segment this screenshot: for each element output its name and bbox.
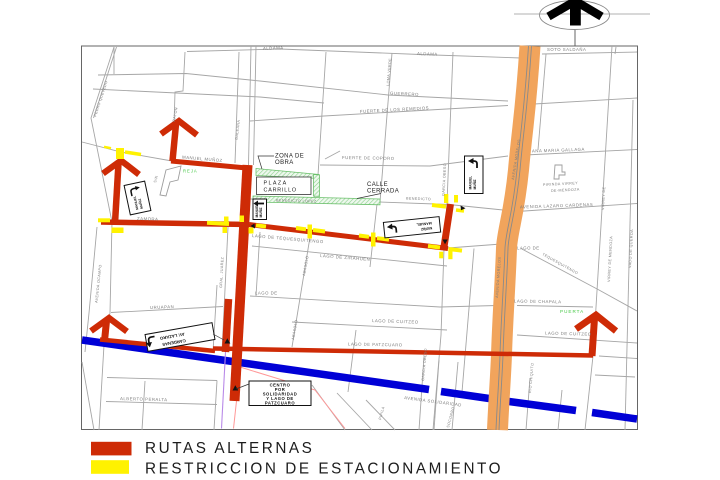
svg-text:ALDAMA: ALDAMA (417, 51, 438, 57)
svg-text:FUERTE DE COPORO: FUERTE DE COPORO (342, 155, 395, 161)
svg-text:MUÑIZ: MUÑIZ (258, 207, 263, 217)
svg-text:RUTAS ALTERNAS: RUTAS ALTERNAS (145, 440, 314, 457)
svg-text:ZAMORA: ZAMORA (137, 216, 159, 222)
svg-text:CARRILLO: CARRILLO (264, 188, 297, 194)
svg-text:URUAPAN: URUAPAN (150, 304, 174, 310)
svg-text:OBRA: OBRA (275, 160, 294, 166)
svg-text:REJA: REJA (183, 169, 198, 174)
svg-text:PLAZA: PLAZA (264, 181, 288, 187)
svg-text:CERRADA: CERRADA (367, 189, 399, 195)
svg-text:RESTRICCION DE ESTACIONAMIENTO: RESTRICCION DE ESTACIONAMIENTO (145, 460, 503, 477)
svg-text:LAGO DE: LAGO DE (255, 291, 278, 296)
svg-text:LAGO DE CHAPALA: LAGO DE CHAPALA (514, 299, 562, 305)
svg-text:LAGO DE PATZCUARO: LAGO DE PATZCUARO (348, 342, 403, 348)
svg-text:CALLE: CALLE (367, 182, 388, 188)
svg-text:PATZCUARO: PATZCUARO (265, 401, 295, 406)
svg-text:PUERTA: PUERTA (560, 309, 584, 314)
svg-text:ALDAMA: ALDAMA (263, 45, 284, 51)
svg-text:ZONA DE: ZONA DE (275, 154, 304, 160)
svg-text:MUÑIZ: MUÑIZ (472, 179, 477, 189)
svg-text:LAGO DE: LAGO DE (517, 246, 540, 251)
svg-text:SOTO SALDAÑA: SOTO SALDAÑA (547, 47, 586, 52)
svg-text:MANUEL: MANUEL (469, 176, 473, 190)
